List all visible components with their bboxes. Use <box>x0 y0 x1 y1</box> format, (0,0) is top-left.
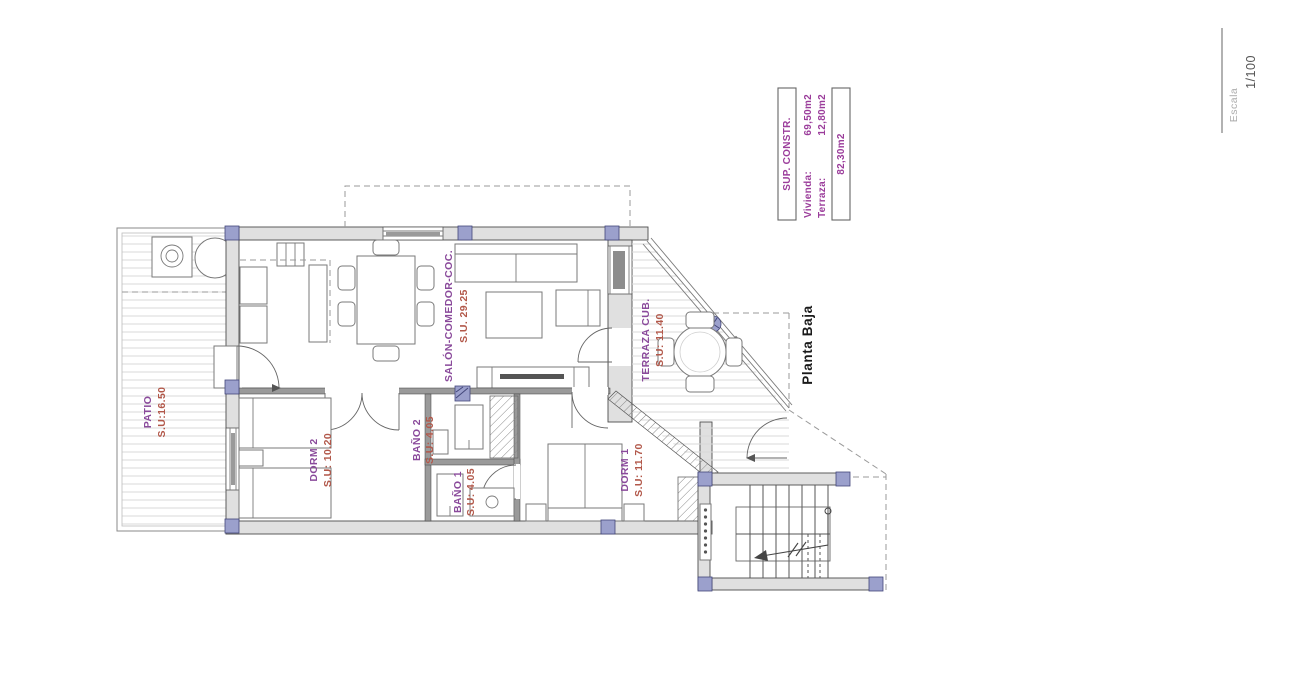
coffee-table <box>486 292 542 338</box>
legend-row1-value: 69,50m2 <box>803 94 814 136</box>
bottom-wall <box>226 521 712 534</box>
dorm1: DORM 1 S.U: 11.70 <box>526 443 700 521</box>
legend-row2-value: 12,80m2 <box>817 94 828 136</box>
stairs-bottom-wall <box>712 578 876 590</box>
bano2-label: BAÑO 2 <box>410 419 423 461</box>
dorm2-area: S.U: 10.20 <box>322 433 334 487</box>
patio-area: S.U:16.50 <box>156 387 168 438</box>
window-right-salon <box>608 246 632 294</box>
kitchen-cabinet <box>240 267 267 304</box>
kitchen <box>240 243 330 343</box>
staircase <box>698 473 876 590</box>
nightstand-left <box>526 504 546 521</box>
dorm1-area: S.U: 11.70 <box>633 443 645 497</box>
stairs-radiator <box>700 504 711 560</box>
armchair <box>556 290 600 326</box>
patio-label: PATIO <box>142 396 154 429</box>
double-bed <box>548 444 622 521</box>
legend-row1-label: Vivienda: <box>803 171 814 218</box>
dorm2-label: DORM 2 <box>308 438 320 481</box>
bano2-shower-hatched <box>490 396 518 458</box>
kitchen-oven <box>277 243 304 266</box>
salon-bedroom-wall <box>239 388 610 394</box>
dorm1-door <box>572 392 608 428</box>
dining-table-set <box>338 240 434 361</box>
window-left-dorm2 <box>226 428 239 490</box>
hall-column-hatched <box>455 386 470 401</box>
scale-indicator: Escala 1/100 <box>1222 28 1258 133</box>
bath-divider-wall <box>425 459 520 465</box>
kitchen-peninsula <box>309 265 327 342</box>
stairs-top-wall <box>712 473 842 485</box>
bano1-label: BAÑO 1 <box>451 471 464 513</box>
nightstand <box>239 450 263 466</box>
salon-label: SALÓN-COMEDOR-COC. <box>442 250 455 382</box>
kitchen-fridge <box>240 306 267 343</box>
sofa <box>455 244 577 282</box>
tv-unit <box>477 367 589 388</box>
dorm2: DORM 2 S.U: 10.20 <box>239 398 334 518</box>
terraza-label: TERRAZA CUB. <box>640 298 652 381</box>
roof-outline-dashed <box>345 186 630 227</box>
legend-title: SUP. CONSTR. <box>782 117 793 190</box>
salon-terrace-door <box>578 328 612 362</box>
scale-value: 1/100 <box>1244 55 1258 89</box>
bano1-area: S.U: 4.05 <box>465 468 477 516</box>
salon-area: S.U. 29.25 <box>458 289 470 343</box>
scale-label: Escala <box>1228 88 1240 123</box>
patio-door <box>214 346 281 392</box>
dorm1-wardrobe-hatched <box>678 477 700 521</box>
legend-row2-label: Terraza: <box>817 177 828 218</box>
dorm1-label: DORM 1 <box>619 448 631 491</box>
floorplan-page: PATIO S.U:16.50 <box>0 0 1290 698</box>
washing-machine-icon <box>152 237 192 277</box>
salon: SALÓN-COMEDOR-COC. S.U. 29.25 <box>338 240 600 388</box>
floorplan-drawing: PATIO S.U:16.50 <box>0 0 1290 698</box>
window-top <box>383 227 443 240</box>
bano1: BAÑO 1 S.U: 4.05 <box>437 468 514 516</box>
legend-total: 82,30m2 <box>836 133 847 175</box>
terrace-door-opening <box>609 328 631 366</box>
bano2-area: S.U: 4.05 <box>424 416 436 464</box>
bano2-toilet <box>455 405 483 449</box>
stair-treads <box>750 485 828 578</box>
hall-door <box>362 393 399 430</box>
nightstand-right <box>624 504 644 521</box>
terraza-area: S.U: 11.40 <box>654 313 666 367</box>
plan-title: Planta Baja <box>800 305 815 384</box>
surface-legend: SUP. CONSTR. Vivienda: 69,50m2 Terraza: … <box>778 88 850 220</box>
